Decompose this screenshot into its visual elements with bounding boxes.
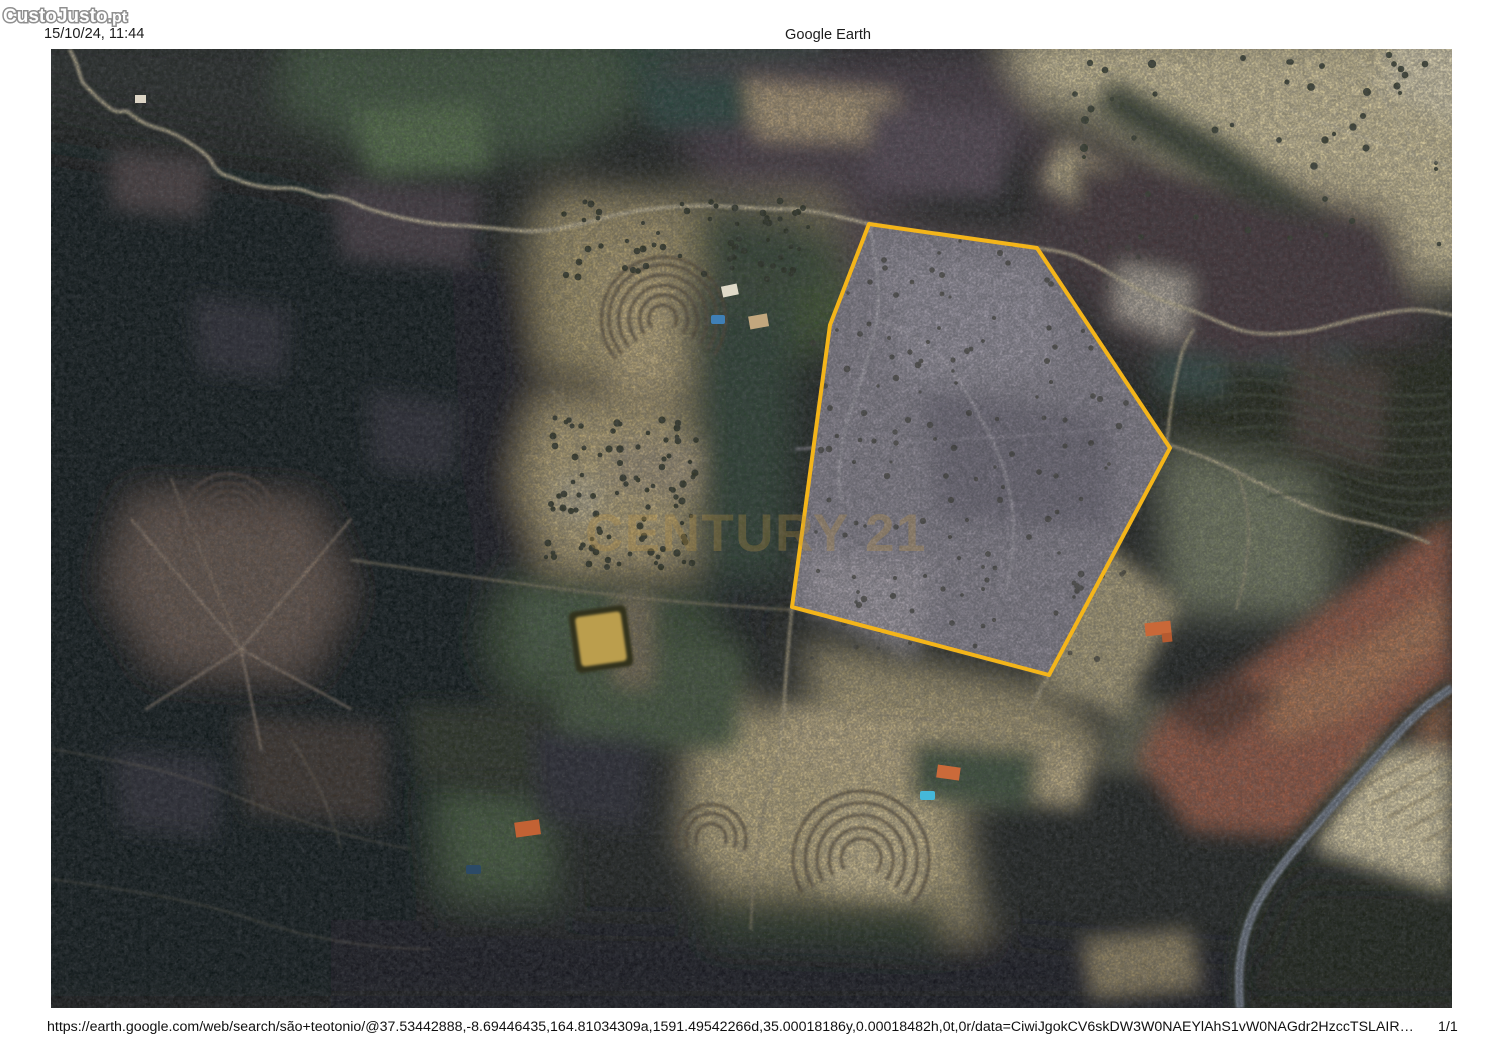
svg-text:CustoJusto.pt: CustoJusto.pt (3, 6, 128, 27)
svg-text:CENTURY 21: CENTURY 21 (585, 504, 927, 563)
